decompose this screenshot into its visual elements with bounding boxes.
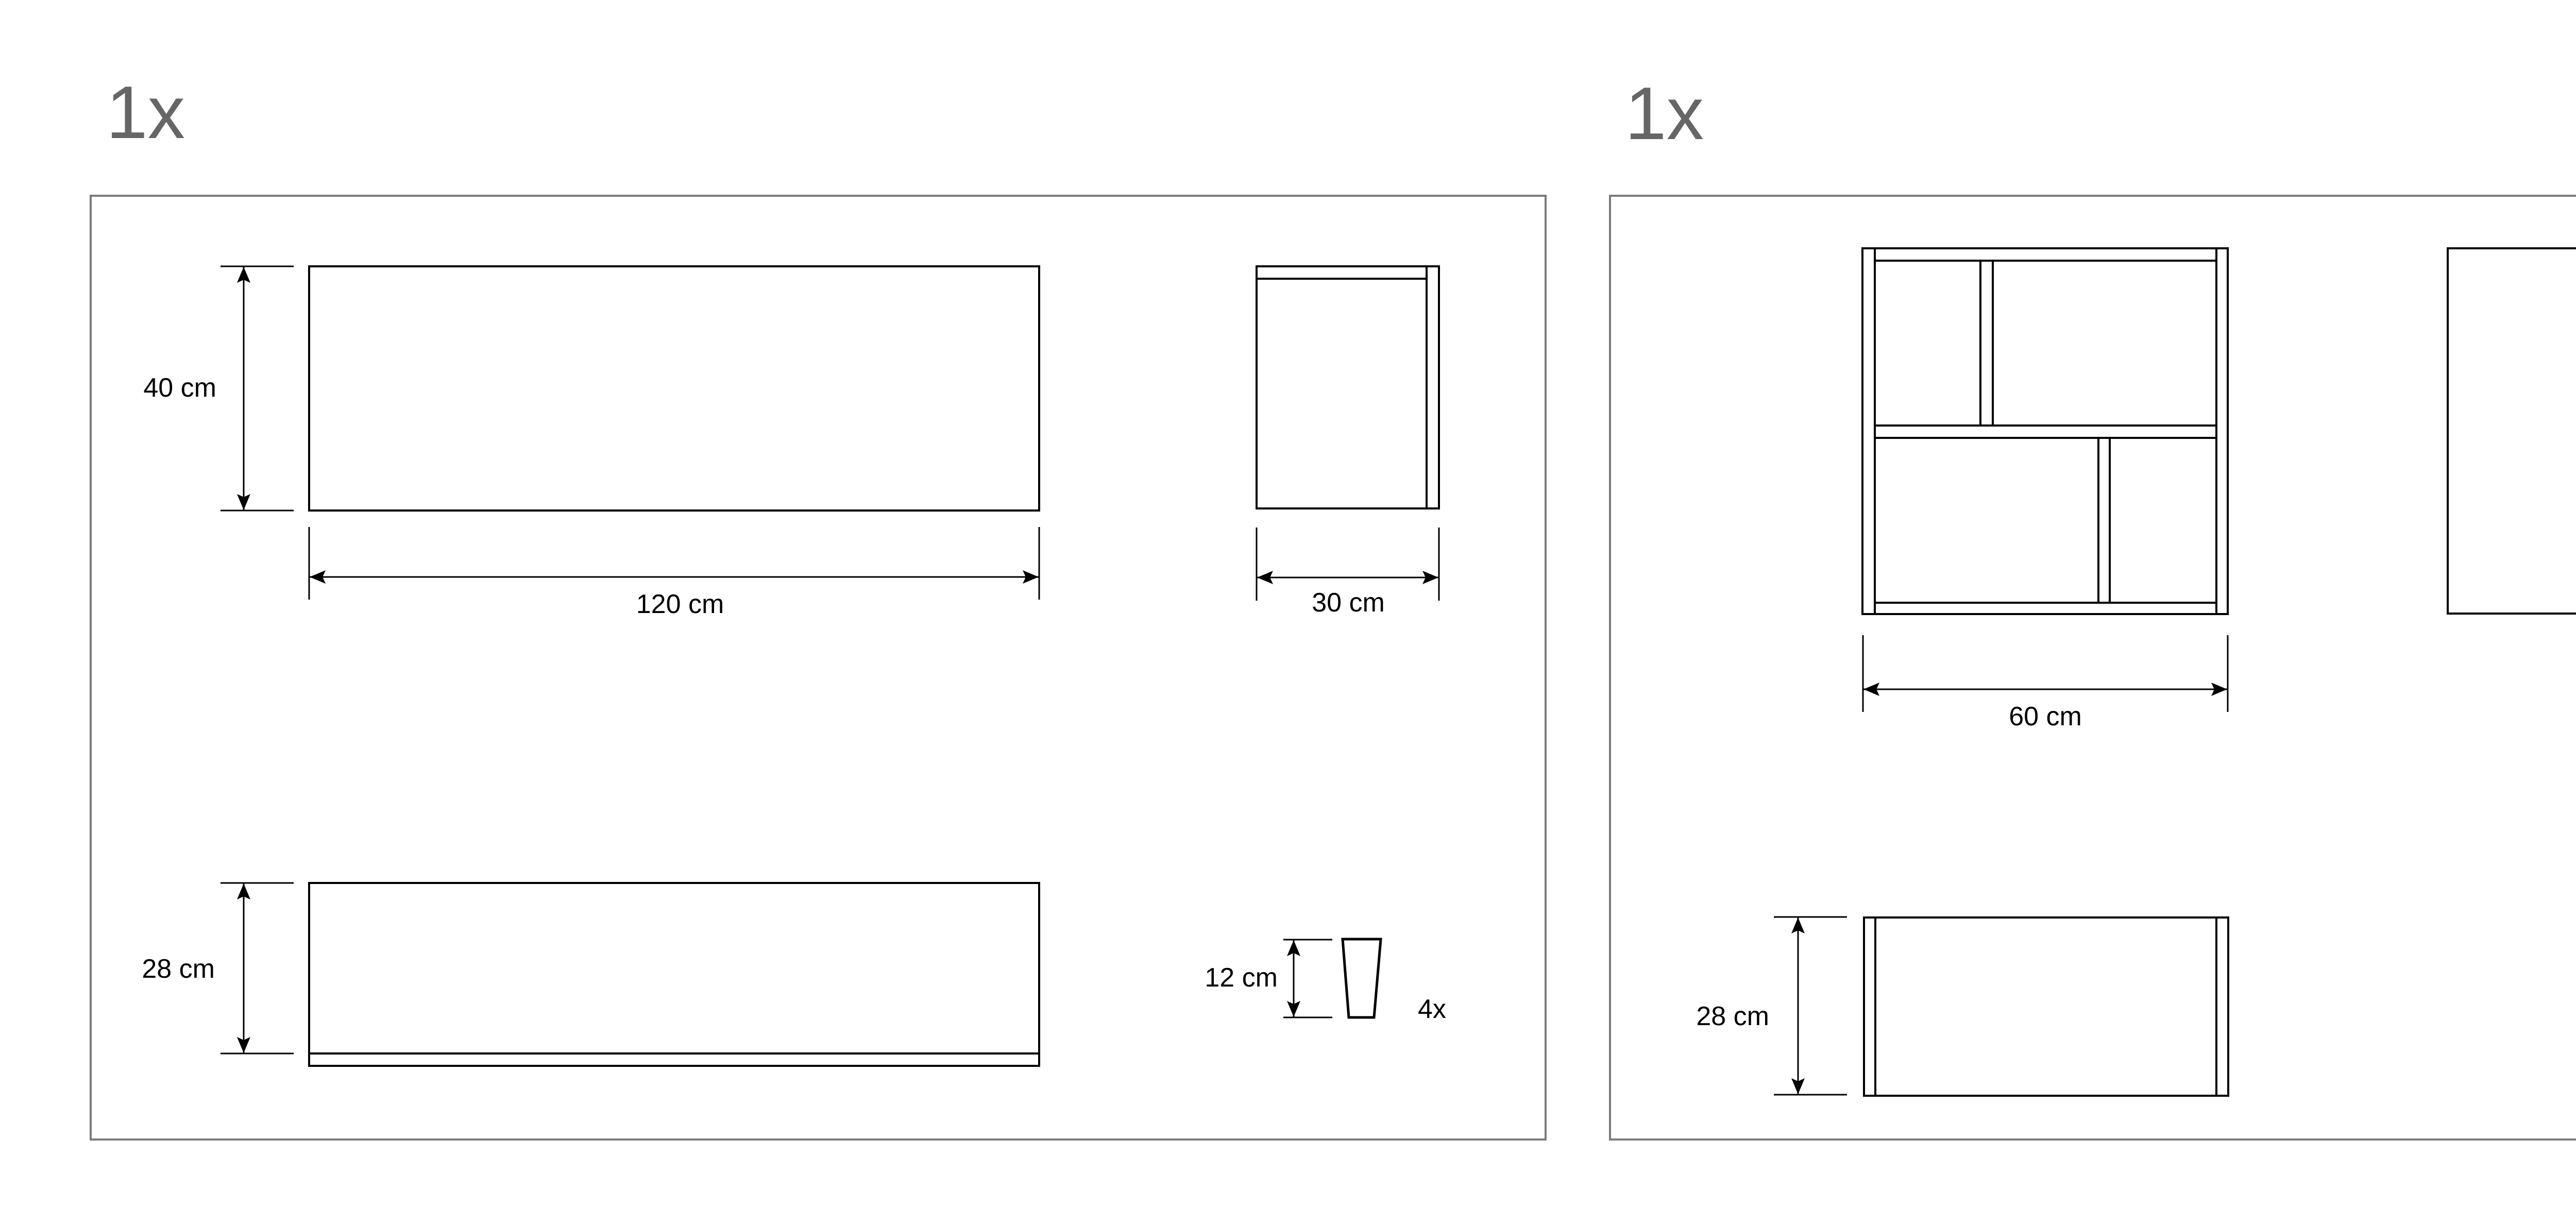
svg-text:40 cm: 40 cm bbox=[143, 373, 216, 403]
svg-text:28 cm: 28 cm bbox=[142, 954, 215, 984]
svg-text:60 cm: 60 cm bbox=[2009, 702, 2082, 732]
svg-text:1x: 1x bbox=[106, 71, 185, 154]
svg-text:28 cm: 28 cm bbox=[1696, 1001, 1769, 1031]
svg-text:120 cm: 120 cm bbox=[636, 589, 724, 619]
svg-text:1x: 1x bbox=[1625, 72, 1704, 155]
svg-text:12 cm: 12 cm bbox=[1205, 963, 1278, 993]
svg-text:30 cm: 30 cm bbox=[1312, 588, 1385, 618]
svg-text:4x: 4x bbox=[1418, 994, 1446, 1024]
